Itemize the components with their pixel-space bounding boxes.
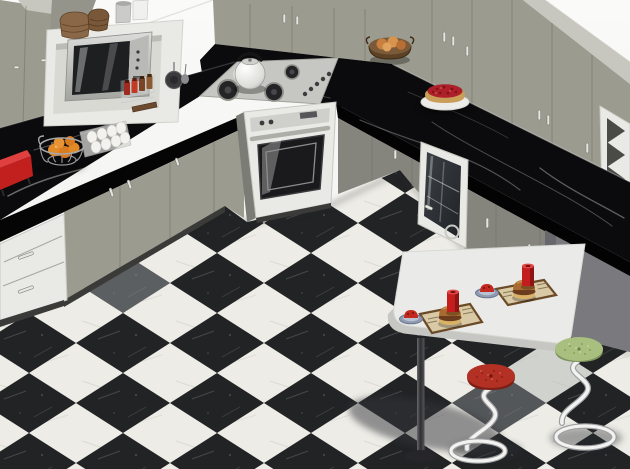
cabinet-handle [547, 115, 550, 125]
hanging-ladle [181, 74, 189, 84]
red-candle-1 [446, 290, 460, 316]
cabinet-handle [443, 32, 446, 42]
cabinet-handle [466, 46, 469, 56]
cabinet-handle [586, 143, 589, 153]
table-leg-base [405, 450, 437, 462]
cabinet-handle [41, 59, 46, 62]
cabinet-handle [486, 218, 489, 228]
bread-bowl [366, 37, 413, 66]
kettle [233, 54, 266, 94]
cabinet-handle [14, 66, 19, 69]
cabinet-handle [283, 14, 286, 23]
cabinet-handle [394, 150, 397, 159]
red-candle-2 [521, 264, 535, 290]
kitchen-render [0, 0, 630, 469]
kitchen-3d-scene [0, 0, 630, 469]
cabinet-handle [538, 110, 541, 120]
wall-oven [236, 102, 336, 223]
table-leg [417, 338, 425, 457]
cabinet-handle [452, 36, 455, 46]
cabinet-handle [296, 16, 299, 25]
